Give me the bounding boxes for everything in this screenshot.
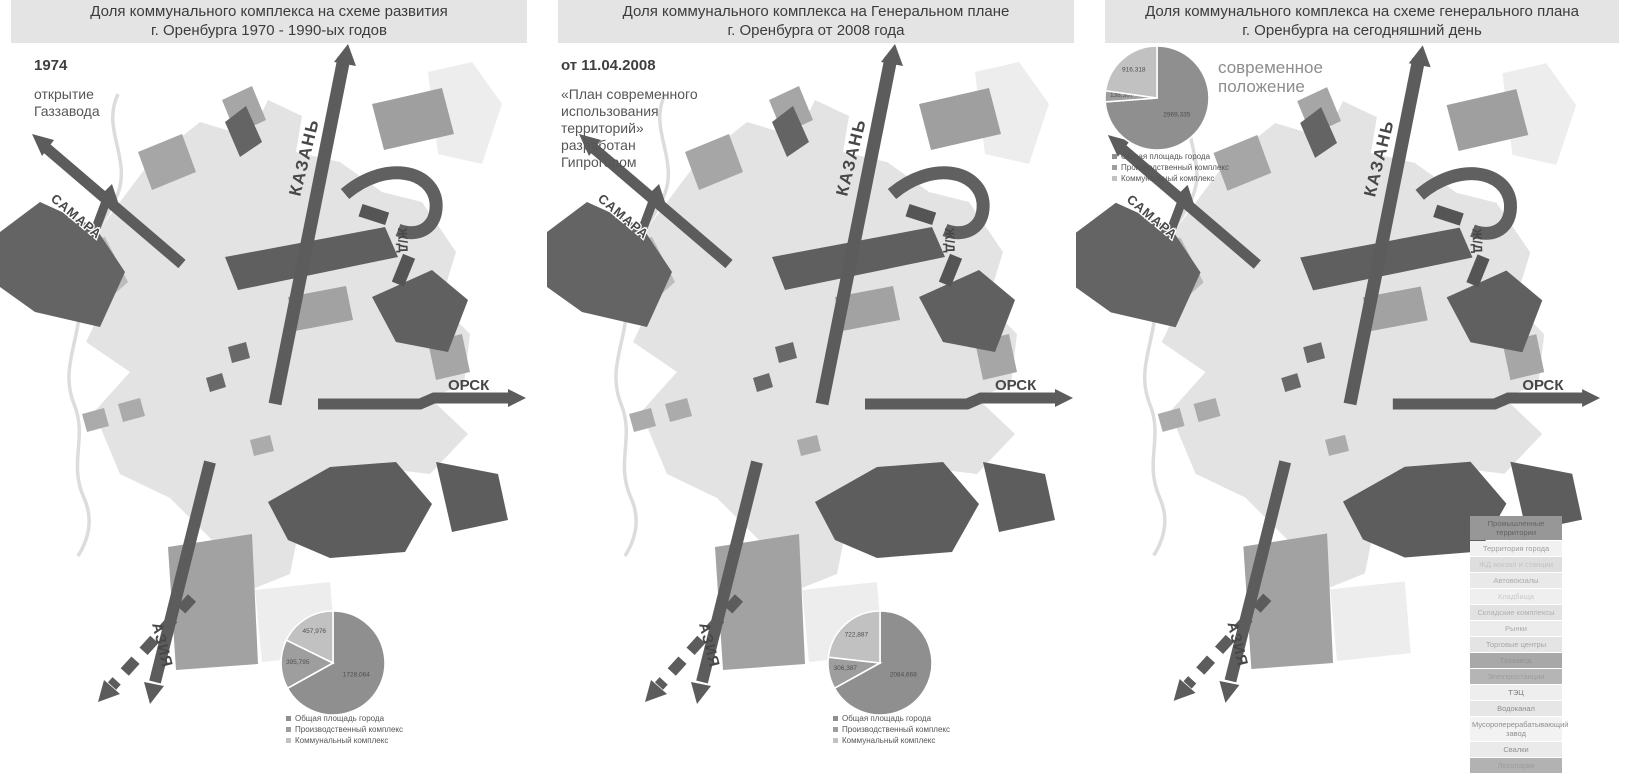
legend-label: Производственный комплекс [295, 725, 403, 734]
panel-title-line2: г. Оренбурга на сегодняшний день [1109, 21, 1615, 40]
pie-legend-item: Коммунальный комплекс [1112, 174, 1229, 183]
note-date: от 11.04.2008 [561, 57, 698, 74]
road-label-rail: Ж/Д [395, 227, 411, 254]
legend-swatch [286, 727, 291, 732]
legend-label: Производственный комплекс [1121, 163, 1229, 172]
pie-legend: Общая площадь городаПроизводственный ком… [1112, 152, 1229, 185]
map-legend-item: Рынки [1470, 621, 1562, 636]
map-legend-item: Электростанции [1470, 669, 1562, 684]
panel-title-line2: г. Оренбурга от 2008 года [562, 21, 1070, 40]
map-legend-item: Водоканал [1470, 701, 1562, 716]
map-legend-panel: Промышленные территорииТерритория города… [1470, 516, 1562, 774]
road-label-rail: Ж/Д [1469, 227, 1485, 253]
pie-legend-item: Производственный комплекс [286, 725, 403, 734]
panel-note: современное положение [1218, 58, 1323, 96]
pie-legend-item: Общая площадь города [833, 714, 950, 723]
map-legend-item: Торговые центры [1470, 637, 1562, 652]
panel-title-line1: Доля коммунального комплекса на Генераль… [562, 2, 1070, 21]
city-map-svg: КАЗАНЬ САМАРА Ж/Д ОРСК АЗИЯ [0, 42, 540, 771]
map-legend-item: Промышленные территории [1470, 516, 1562, 540]
pie-value-label: 916,318 [1122, 66, 1146, 73]
map-legend-item: Территория города [1470, 541, 1562, 556]
panel-title-line1: Доля коммунального комплекса на схеме ге… [1109, 2, 1615, 21]
legend-swatch [286, 738, 291, 743]
pie-chart: 2969,335138,307916,318 [1102, 43, 1212, 153]
pie-chart-wrap: 2969,335138,307916,318 [1102, 43, 1212, 153]
map-legend-item: Кладбища [1470, 589, 1562, 604]
pie-value-label: 457,976 [303, 628, 327, 635]
pie-chart: 1728,064395,795457,976 [278, 608, 388, 718]
panel-title: Доля коммунального комплекса на схеме ра… [11, 0, 527, 43]
panel-note: 1974 открытие Газзавода [34, 57, 100, 120]
pie-value-label: 2969,335 [1163, 111, 1190, 118]
pie-legend-item: Общая площадь города [1112, 152, 1229, 161]
panel-title-line1: Доля коммунального комплекса на схеме ра… [15, 2, 523, 21]
panel-1970-1990: Доля коммунального комплекса на схеме ра… [0, 0, 540, 771]
legend-swatch [833, 727, 838, 732]
pie-legend-item: Производственный комплекс [1112, 163, 1229, 172]
pie-legend-item: Производственный комплекс [833, 725, 950, 734]
note-text: «План современного использования террито… [561, 86, 698, 171]
panel-2008: Доля коммунального комплекса на Генераль… [547, 0, 1087, 771]
road-label-rail: Ж/Д [942, 227, 958, 254]
map-legend-item: Свалки [1470, 742, 1562, 757]
pie-legend-item: Общая площадь города [286, 714, 403, 723]
pie-chart-wrap: 1728,064395,795457,976 [278, 608, 388, 718]
legend-swatch [833, 738, 838, 743]
pie-value-label: 306,387 [834, 665, 858, 672]
map-legend-item: Складские комплексы [1470, 605, 1562, 620]
pie-value-label: 395,795 [286, 659, 310, 666]
road-label-orsk: ОРСК [1522, 377, 1564, 394]
road-label-orsk: ОРСК [995, 377, 1037, 394]
pie-value-label: 1728,064 [343, 672, 370, 679]
map-legend-item: Мусороперерабатывающий завод [1470, 717, 1562, 741]
panel-title: Доля коммунального комплекса на Генераль… [558, 0, 1074, 43]
pie-value-label: 722,887 [845, 632, 869, 639]
pie-legend: Общая площадь городаПроизводственный ком… [833, 714, 950, 747]
legend-label: Коммунальный комплекс [295, 736, 388, 745]
legend-label: Общая площадь города [295, 714, 384, 723]
legend-swatch [833, 716, 838, 721]
legend-swatch [1112, 176, 1117, 181]
map-legend-item: Автовокзалы [1470, 573, 1562, 588]
note-year: 1974 [34, 57, 100, 74]
pie-legend-item: Коммунальный комплекс [286, 736, 403, 745]
legend-label: Общая площадь города [842, 714, 931, 723]
map-legend-item: Газзавод [1470, 653, 1562, 668]
legend-swatch [1112, 165, 1117, 170]
pie-chart-wrap: 2084,668306,387722,887 [825, 608, 935, 718]
legend-swatch [286, 716, 291, 721]
pie-legend-item: Коммунальный комплекс [833, 736, 950, 745]
pie-value-label: 2084,668 [890, 672, 917, 679]
map-legend-item: ТЭЦ [1470, 685, 1562, 700]
note-text: современное положение [1218, 58, 1323, 96]
city-map: КАЗАНЬ САМАРА Ж/Д ОРСК АЗИЯ [0, 42, 540, 771]
road-label-orsk: ОРСК [448, 377, 490, 394]
legend-swatch [1112, 154, 1117, 159]
legend-label: Коммунальный комплекс [842, 736, 935, 745]
legend-label: Общая площадь города [1121, 152, 1210, 161]
legend-label: Коммунальный комплекс [1121, 174, 1214, 183]
panel-note: от 11.04.2008 «План современного использ… [561, 57, 698, 171]
panel-title-line2: г. Оренбурга 1970 - 1990-ых годов [15, 21, 523, 40]
legend-label: Производственный комплекс [842, 725, 950, 734]
panel-today: Доля коммунального комплекса на схеме ге… [1094, 0, 1632, 771]
pie-legend: Общая площадь городаПроизводственный ком… [286, 714, 403, 747]
note-text: открытие Газзавода [34, 86, 100, 120]
pie-chart: 2084,668306,387722,887 [825, 608, 935, 718]
map-legend-item: ЖД вокзал и станции [1470, 557, 1562, 572]
panel-title: Доля коммунального комплекса на схеме ге… [1105, 0, 1619, 43]
